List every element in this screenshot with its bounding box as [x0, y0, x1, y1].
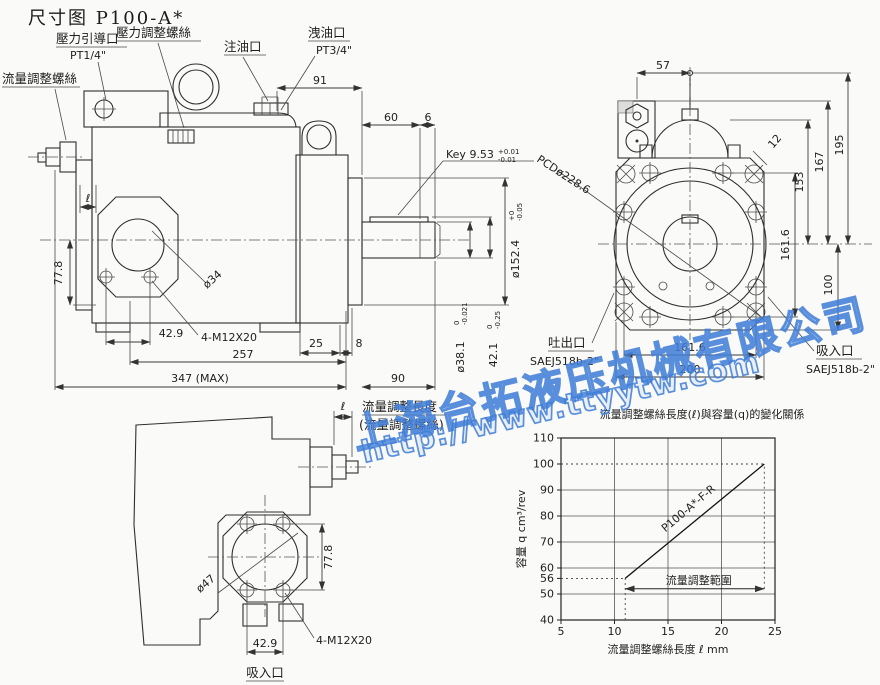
shaft-tol-upper: 0: [453, 321, 461, 325]
flow-screw-label: 流量調整螺絲: [2, 71, 78, 86]
dim-153: 153: [793, 172, 806, 193]
outlet-port-size: SAEJ518b-2": [530, 355, 599, 368]
outlet-port-label: 吐出口: [548, 335, 586, 350]
dim-42-1-tol-lower: -0.25: [494, 311, 502, 329]
dim-42-9: 42.9: [159, 327, 184, 340]
dim-8: 8: [356, 337, 363, 350]
end-view: PCDø228.6 12 57 161.6 153 167 195 100 16: [520, 25, 880, 410]
bolt-spec-bottom: 4-M12X20: [316, 634, 372, 647]
front-view: 91 60 6 Key 9.53 +0.01 -0.01 ø152.4 +0 -…: [0, 25, 540, 410]
dim-42-9-bottom: 42.9: [253, 637, 278, 650]
end-view-dimensions: PCDø228.6 12 57 161.6 153 167 195 100 16: [534, 59, 851, 380]
series-line: [625, 464, 764, 578]
ytick-label: 70: [540, 536, 554, 549]
xtick-label: 5: [558, 625, 565, 638]
dim-42-1: 42.1: [487, 343, 500, 368]
dim-77-8-bottom: 77.8: [322, 545, 335, 570]
inlet-port-size: SAEJ518b-2": [806, 363, 875, 376]
dim-90: 90: [391, 372, 405, 385]
drain-size: PT3/4": [316, 44, 352, 57]
bottom-view: ø47 ℓ 77.8 42.9 4-M12X20 流量調整長度 (流量調整螺絲)…: [60, 395, 490, 685]
ytick-label: 50: [540, 588, 554, 601]
dim-6: 6: [425, 111, 432, 124]
adjust-length-label: 流量調整長度: [362, 399, 438, 414]
pcd-label: PCDø228.6: [534, 153, 592, 197]
chart-xlabel: 流量調整螺絲長度 ℓ mm: [608, 642, 729, 656]
dim-42-1-tol-upper: 0: [486, 325, 494, 329]
dim-ell: ℓ: [85, 192, 91, 205]
dim-12: 12: [765, 132, 784, 151]
dim-57: 57: [656, 59, 670, 72]
flow-capacity-chart: 40505660708090100110510152025P100-A*-F-R…: [500, 400, 880, 685]
key-tol-lower: -0.01: [498, 156, 516, 164]
xtick-label: 25: [768, 625, 782, 638]
flange-outline: [558, 67, 872, 340]
dim-shaft-dia: ø38.1: [454, 341, 467, 372]
inlet-port-label-bottom: 吸入口: [246, 665, 284, 680]
oil-fill-label: 注油口: [224, 39, 262, 54]
pilot-tol-upper: +0: [508, 211, 516, 221]
dim-77-8: 77.8: [52, 261, 65, 286]
ytick-label: 40: [540, 614, 554, 627]
chart-ylabel: 容量 q cm³/rev: [514, 489, 528, 568]
dim-161-6-h: 161.6: [674, 341, 706, 354]
pilot-port-size: PT1/4": [70, 49, 106, 62]
front-view-labels: 流量調整螺絲 壓力引導口 PT1/4" 壓力調整螺絲 注油口 洩油口 PT3/4…: [2, 25, 352, 140]
key-tol-upper: +0.01: [498, 148, 519, 156]
bolt-spec: 4-M12X20: [201, 331, 257, 344]
xtick-label: 15: [661, 625, 675, 638]
key-spec: Key 9.53: [446, 148, 494, 161]
ytick-label: 60: [540, 562, 554, 575]
dim-195: 195: [833, 135, 846, 156]
dim-167: 167: [813, 152, 826, 173]
range-label: 流量調整範圍: [666, 573, 732, 587]
ytick-label: 110: [533, 432, 554, 445]
pilot-port-label: 壓力引導口: [56, 31, 119, 46]
inlet-port-label: 吸入口: [816, 343, 854, 358]
pump-body-outline: [28, 64, 472, 332]
drain-label: 洩油口: [308, 25, 346, 40]
bottom-body-outline: [134, 417, 372, 645]
dim-47: ø47: [194, 572, 218, 595]
dim-200: 200: [680, 363, 701, 376]
xtick-label: 10: [608, 625, 622, 638]
shaft-tol-lower: -0.021: [461, 302, 469, 325]
front-view-dimensions: 91 60 6 Key 9.53 +0.01 -0.01 ø152.4 +0 -…: [52, 74, 534, 390]
ytick-label: 100: [533, 458, 554, 471]
chart-title: 流量調整螺絲長度(ℓ)與容量(q)的變化關係: [600, 407, 805, 421]
dim-25: 25: [309, 337, 323, 350]
adjust-screw-label: (流量調整螺絲): [359, 417, 444, 432]
dim-34: ø34: [200, 268, 224, 292]
drawing-sheet: 尺寸图 P100-A*: [0, 0, 880, 685]
ytick-label: 90: [540, 484, 554, 497]
dim-91: 91: [313, 74, 327, 87]
xtick-label: 20: [715, 625, 729, 638]
dim-60: 60: [384, 111, 398, 124]
dim-ell-bottom: ℓ: [340, 400, 346, 413]
dim-257: 257: [233, 348, 254, 361]
dim-347: 347 (MAX): [171, 372, 229, 385]
pressure-screw-label: 壓力調整螺絲: [116, 25, 192, 40]
dim-100: 100: [822, 275, 835, 296]
ytick-label: 80: [540, 510, 554, 523]
dim-161-6-v: 161.6: [779, 229, 792, 261]
